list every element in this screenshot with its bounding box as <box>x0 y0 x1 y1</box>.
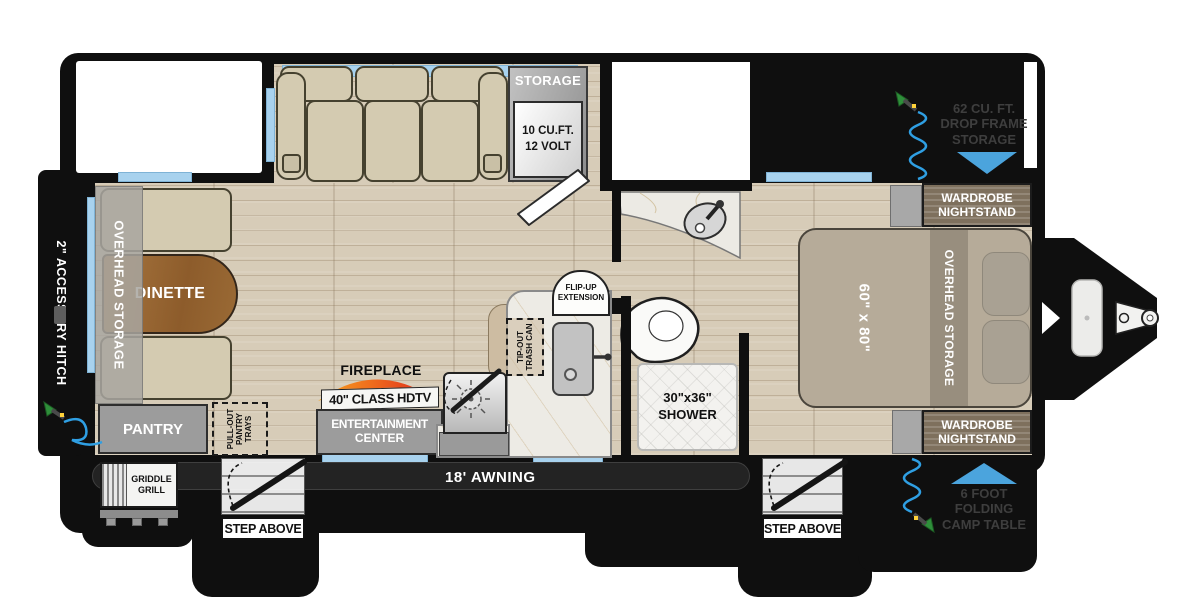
sofa-cupholder-left <box>282 154 301 173</box>
wardrobe-nightstand-top: WARDROBE NIGHTSTAND <box>922 183 1032 227</box>
griddle-grill-leg <box>158 518 168 526</box>
pullout-pantry-trays-label: PULL-OUT PANTRY TRAYS <box>227 409 253 449</box>
shower-wall-left <box>621 296 631 455</box>
sofa-cupholder-right <box>483 154 502 173</box>
sofa-back-cushion <box>355 66 429 102</box>
wardrobe-label: WARDROBE <box>941 191 1012 205</box>
propane-tank <box>1072 280 1102 356</box>
bath-top-cutout <box>612 62 750 180</box>
kitchen-sink-drain <box>564 368 577 381</box>
shower-pan: 30"x36" SHOWER <box>637 363 738 451</box>
stove-base <box>439 432 509 456</box>
dinette-label: DINETTE <box>135 285 206 303</box>
bed-size-band: 60" x 80" <box>834 228 894 408</box>
pantry-label: PANTRY <box>123 421 183 438</box>
bed-size-label: 60" x 80" <box>856 284 873 353</box>
bed-overhead-storage-band: OVERHEAD STORAGE <box>930 230 968 406</box>
hitch-coupler-ball <box>1142 310 1158 326</box>
griddle-grill-grate <box>102 464 127 506</box>
tip-out-trash-label: TIP-OUT TRASH CAN <box>516 323 534 370</box>
sofa-seat-cushion <box>306 100 364 182</box>
entertainment-center: ENTERTAINMENT CENTER <box>316 409 443 455</box>
window-bedroom-top <box>766 172 872 182</box>
griddle-grill-base <box>100 510 178 518</box>
flip-up-extension: FLIP-UP EXTENSION <box>552 270 610 316</box>
shower-label: SHOWER <box>658 407 717 424</box>
front-hitch-frame <box>1038 238 1157 400</box>
griddle-grill-label: GRIDDLE GRILL <box>127 464 176 506</box>
stove <box>443 372 507 434</box>
hdtv-label: 40" CLASS HDTV <box>329 390 431 408</box>
window-rear-left <box>87 197 95 373</box>
window-dinette-top <box>118 172 192 182</box>
front-overhead-storage-band: OVERHEAD STORAGE <box>95 186 143 404</box>
entertainment-center-label: ENTERTAINMENT <box>331 418 428 432</box>
sofa-seat-cushion <box>421 100 479 182</box>
shower-size-label: 30"x36" <box>663 390 711 407</box>
front-left-cutout <box>76 61 262 173</box>
front-overhead-storage-label: OVERHEAD STORAGE <box>112 220 127 369</box>
step-above-label-main: STEP ABOVE <box>221 517 305 540</box>
drop-frame-storage-label: 62 CU. FT. DROP FRAME STORAGE <box>936 101 1032 147</box>
hitch-coupler-pin <box>1120 314 1129 323</box>
bedroom-dresser-bottom <box>892 410 922 454</box>
step-above-label-bedroom: STEP ABOVE <box>762 517 843 540</box>
refrigerator-volt-label: 12 VOLT <box>525 140 571 156</box>
rear-hitch-receiver <box>54 306 66 324</box>
flip-up-extension-label: FLIP-UP <box>565 283 596 293</box>
bed-overhead-storage-label: OVERHEAD STORAGE <box>942 250 956 387</box>
griddle-grill-leg <box>106 518 116 526</box>
sofa <box>276 66 508 186</box>
wardrobe-nightstand-bottom: WARDROBE NIGHTSTAND <box>922 410 1032 454</box>
bedroom-dresser-top <box>890 185 922 227</box>
pillow <box>982 320 1030 384</box>
griddle-grill-leg <box>132 518 142 526</box>
hitch-coupler <box>1116 302 1146 334</box>
bath-wall-left-upper <box>612 183 621 262</box>
awning-label: 18' AWNING <box>445 469 565 486</box>
pillow <box>982 252 1030 316</box>
hdtv-panel: 40" CLASS HDTV <box>321 386 439 410</box>
shower-wall-right <box>739 333 749 455</box>
wardrobe-label: WARDROBE <box>941 418 1012 432</box>
refrigerator-size-label: 10 CU.FT. <box>522 124 574 140</box>
storage-cabinet-label: STORAGE <box>510 73 586 88</box>
refrigerator: 10 CU.FT. 12 VOLT <box>513 101 583 178</box>
floorplan-canvas: 2" ACCESSORY HITCH DINETTE <box>0 0 1200 608</box>
tip-out-trash-can: TIP-OUT TRASH CAN <box>506 318 544 376</box>
bath-wall-top <box>600 183 752 191</box>
kitchen-sink <box>552 322 594 396</box>
pullout-pantry-trays: PULL-OUT PANTRY TRAYS <box>212 402 268 456</box>
folding-camp-table-label: 6 FOOT FOLDING CAMP TABLE <box>934 486 1034 532</box>
bath-wall-left-stub <box>612 298 621 314</box>
pantry: PANTRY <box>98 404 208 454</box>
awning-bar: 18' AWNING <box>92 462 750 490</box>
sofa-seat-cushion <box>364 100 421 182</box>
fireplace-label: FIREPLACE <box>316 362 446 378</box>
entry-step-bedroom <box>762 458 843 515</box>
entry-step-main <box>221 458 305 515</box>
griddle-grill: GRIDDLE GRILL <box>100 462 178 508</box>
window-sofa-slide-left <box>266 88 275 162</box>
